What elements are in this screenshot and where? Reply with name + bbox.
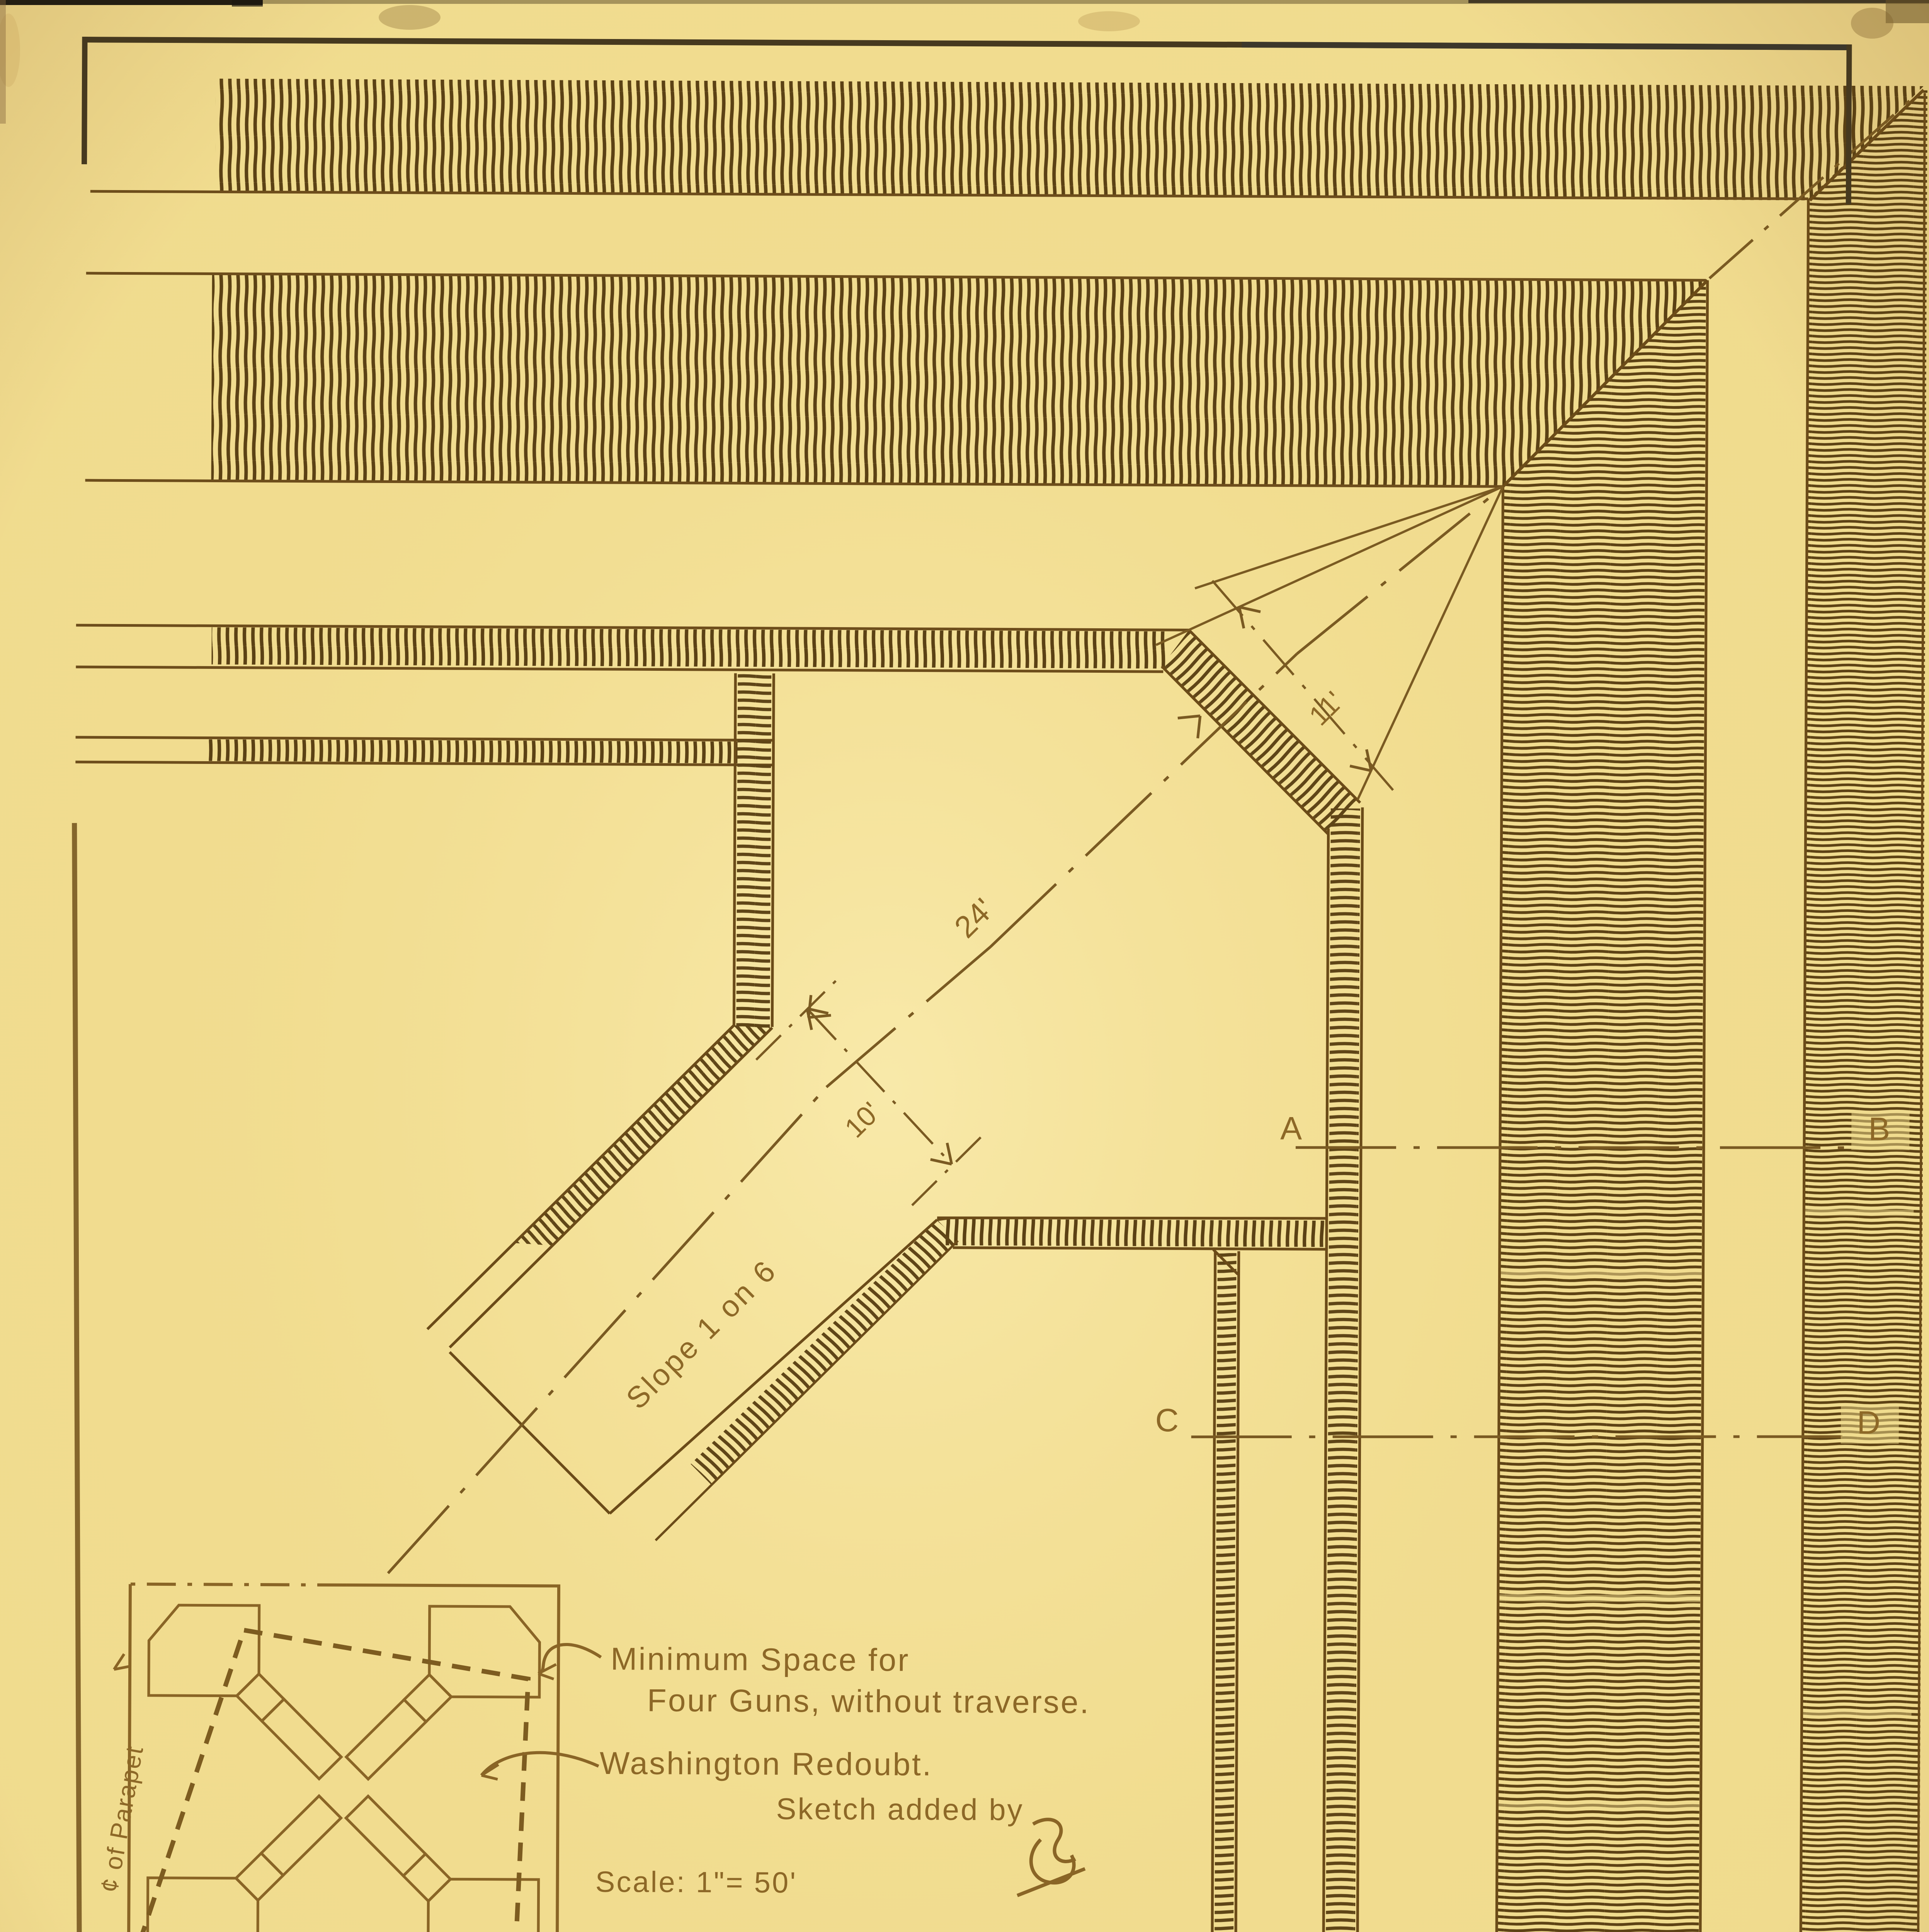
svg-text:Scale: 1"= 50': Scale: 1"= 50' (595, 1866, 797, 1899)
svg-text:Sketch added by: Sketch added by (776, 1792, 1024, 1827)
svg-text:B: B (1868, 1111, 1890, 1147)
svg-text:Four Guns, without traverse.: Four Guns, without traverse. (647, 1683, 1090, 1720)
svg-text:Minimum Space for: Minimum Space for (611, 1641, 910, 1678)
svg-text:Washington Redoubt.: Washington Redoubt. (600, 1746, 933, 1782)
svg-text:D: D (1857, 1404, 1880, 1440)
svg-text:A: A (1280, 1110, 1302, 1146)
svg-text:C: C (1155, 1402, 1179, 1438)
